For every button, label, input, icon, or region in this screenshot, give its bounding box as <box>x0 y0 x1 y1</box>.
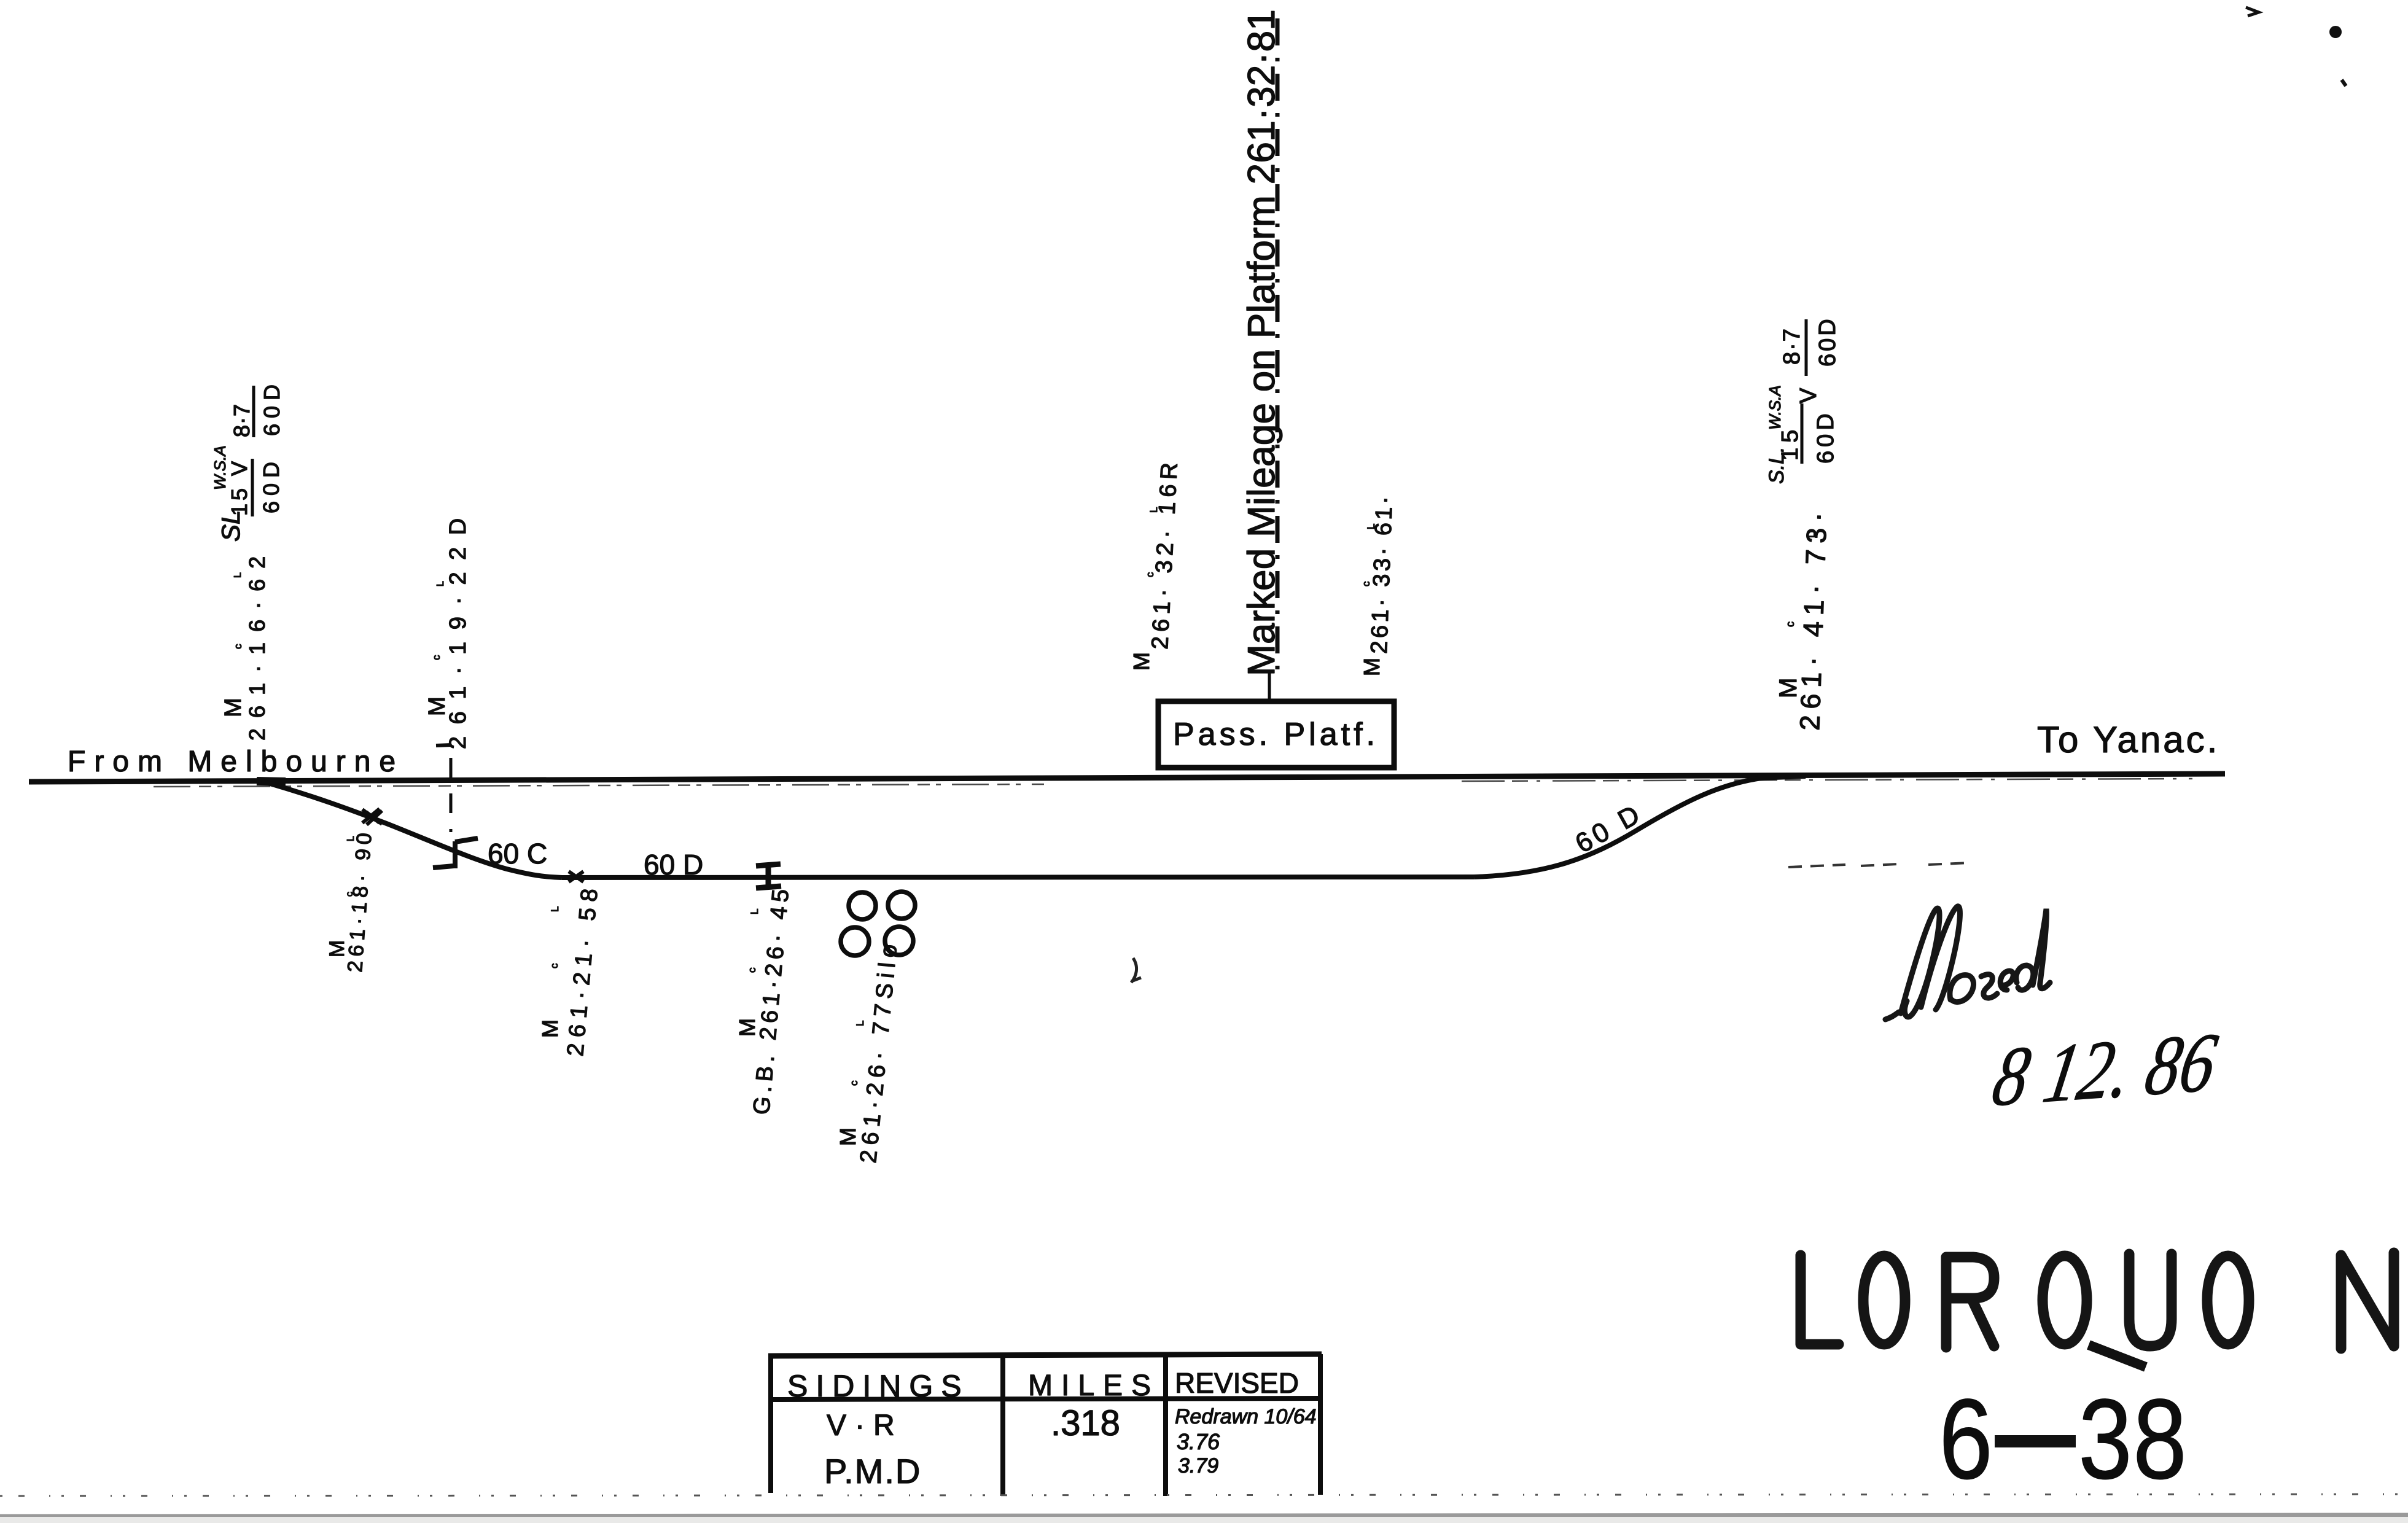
svg-text:3.76: 3.76 <box>1177 1429 1220 1454</box>
svg-text:L: L <box>854 1021 866 1026</box>
svg-text:Pass. Platf.: Pass. Platf. <box>1173 717 1379 752</box>
svg-text:L: L <box>346 836 356 841</box>
svg-text:c: c <box>1144 572 1156 577</box>
svg-text:60D: 60D <box>259 379 284 436</box>
svg-text:M: M <box>1359 658 1384 676</box>
svg-text:60 C: 60 C <box>488 838 547 870</box>
svg-text:8 12. 86: 8 12. 86 <box>1987 1016 2224 1124</box>
svg-text:V: V <box>1796 388 1822 403</box>
svg-text:.318: .318 <box>1051 1403 1120 1443</box>
svg-text:L: L <box>435 581 446 586</box>
svg-text:c: c <box>431 655 442 660</box>
svg-text:c: c <box>1360 581 1372 586</box>
svg-text:Marked Mileage on Platform 261: Marked Mileage on Platform 261·32·81 <box>1241 9 1283 676</box>
svg-text:L: L <box>1805 532 1817 538</box>
svg-text:3: 3 <box>2078 1376 2132 1503</box>
svg-text:SIDINGS: SIDINGS <box>787 1369 970 1403</box>
svg-text:L: L <box>233 572 243 578</box>
svg-text:60D: 60D <box>1815 316 1841 367</box>
svg-text:M: M <box>537 1019 563 1038</box>
svg-text:8·7: 8·7 <box>229 403 254 437</box>
svg-text:15 V: 15 V <box>227 458 252 516</box>
svg-text:Redrawn 10/64: Redrawn 10/64 <box>1175 1405 1317 1428</box>
svg-text:8·7: 8·7 <box>1779 327 1805 365</box>
svg-text:8: 8 <box>2133 1376 2186 1503</box>
svg-text:6: 6 <box>1939 1376 1992 1503</box>
svg-text:c: c <box>848 1080 860 1086</box>
svg-text:261·16·62: 261·16·62 <box>244 546 270 741</box>
svg-text:c: c <box>746 967 758 973</box>
svg-text:M: M <box>1129 652 1154 671</box>
svg-text:M: M <box>424 696 450 716</box>
svg-text:c: c <box>1784 621 1796 627</box>
svg-text:M: M <box>1775 678 1802 698</box>
svg-text:V·R: V·R <box>827 1409 903 1442</box>
svg-text:P.M.D: P.M.D <box>824 1452 921 1490</box>
svg-text:60D: 60D <box>1813 410 1839 464</box>
svg-text:3.79: 3.79 <box>1178 1454 1218 1478</box>
svg-text:M: M <box>325 940 349 957</box>
svg-text:From Melbourne: From Melbourne <box>68 746 404 778</box>
svg-text:c: c <box>548 963 560 968</box>
svg-text:M: M <box>734 1018 760 1037</box>
svg-text:M: M <box>835 1128 860 1146</box>
svg-text:REVISED: REVISED <box>1175 1367 1299 1399</box>
svg-text:15: 15 <box>1777 425 1803 461</box>
svg-text:60 D: 60 D <box>644 849 703 881</box>
svg-text:W.S.A: W.S.A <box>1766 385 1784 430</box>
svg-text:c: c <box>232 644 244 649</box>
svg-text:To Yanac.: To Yanac. <box>2037 719 2219 760</box>
svg-text:c: c <box>345 892 355 897</box>
svg-text:L: L <box>1365 524 1377 529</box>
svg-text:L: L <box>1148 507 1159 513</box>
svg-text:L: L <box>549 906 561 912</box>
svg-text:M: M <box>220 698 246 717</box>
svg-text:60D: 60D <box>259 456 284 513</box>
svg-text:MILES: MILES <box>1028 1369 1159 1402</box>
svg-text:L: L <box>749 909 760 914</box>
